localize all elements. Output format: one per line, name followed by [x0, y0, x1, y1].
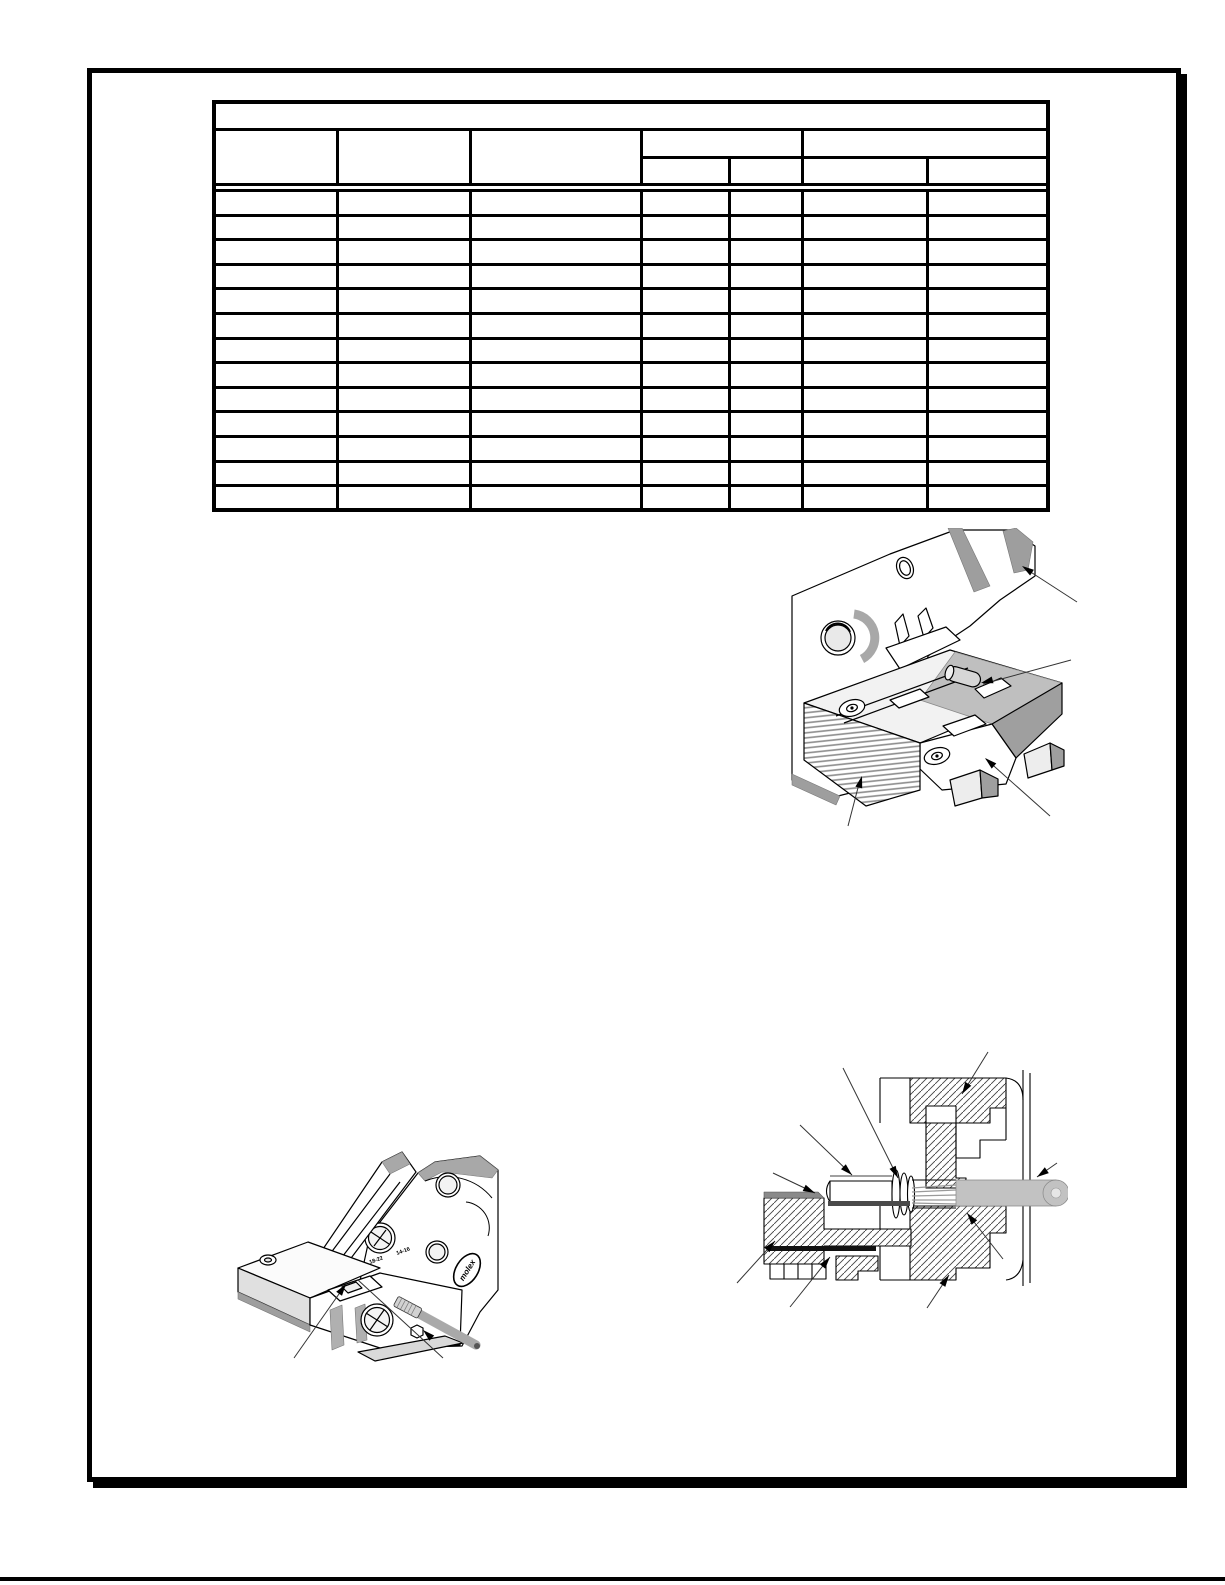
- sub-header: [802, 158, 927, 185]
- housing-step-section: [836, 1256, 878, 1280]
- hex-nut: [411, 1325, 423, 1338]
- table-cell: [927, 486, 1048, 511]
- table-cell: [470, 289, 641, 314]
- table-cell: [337, 313, 470, 338]
- table-cell: [802, 461, 927, 486]
- table-row: [214, 289, 1048, 314]
- wire-insulation: [956, 1180, 1056, 1206]
- table-cell: [729, 363, 802, 388]
- table-title-cell: [214, 102, 1048, 130]
- table-cell: [802, 486, 927, 511]
- housing-column-section: [926, 1123, 966, 1188]
- table-cell: [214, 338, 337, 363]
- table-cell: [470, 240, 641, 265]
- table-cell: [927, 289, 1048, 314]
- table-cell: [729, 387, 802, 412]
- table-cell: [470, 191, 641, 216]
- table-cell: [802, 191, 927, 216]
- table-cell: [802, 215, 927, 240]
- sub-header: [729, 158, 802, 185]
- group-header: [641, 130, 802, 158]
- table-cell: [337, 486, 470, 511]
- table-cell: [641, 363, 729, 388]
- table-row: [214, 486, 1048, 511]
- table-cell: [927, 191, 1048, 216]
- spec-table: [212, 100, 1050, 512]
- table-cell: [214, 412, 337, 437]
- table-cell: [927, 363, 1048, 388]
- table-cell: [214, 191, 337, 216]
- table-cell: [729, 338, 802, 363]
- table-cell: [337, 387, 470, 412]
- table-cell: [214, 436, 337, 461]
- table-cell: [802, 363, 927, 388]
- table-row: [214, 240, 1048, 265]
- table-cell: [641, 313, 729, 338]
- table-cell: [214, 363, 337, 388]
- page-footer-rule: [0, 1577, 1225, 1581]
- crimp-cross-section-figure: [718, 1028, 1068, 1328]
- table-cell: [927, 313, 1048, 338]
- table-cell: [470, 264, 641, 289]
- table-cell: [927, 412, 1048, 437]
- table-cell: [337, 289, 470, 314]
- table-cell: [802, 338, 927, 363]
- table-row: [214, 338, 1048, 363]
- table-cell: [470, 387, 641, 412]
- table-cell: [802, 240, 927, 265]
- table-cell: [927, 387, 1048, 412]
- table-cell: [802, 412, 927, 437]
- column-header: [214, 130, 337, 185]
- table-cell: [470, 363, 641, 388]
- body-screw: [426, 1241, 448, 1263]
- table-cell: [802, 436, 927, 461]
- column-header: [470, 130, 641, 185]
- retainer-block-section: [764, 1198, 911, 1264]
- table-cell: [641, 412, 729, 437]
- table-row: [214, 387, 1048, 412]
- table-cell: [641, 264, 729, 289]
- table-cell: [729, 461, 802, 486]
- terminal-tab: [828, 1201, 910, 1206]
- table-cell: [802, 264, 927, 289]
- table-cell: [337, 338, 470, 363]
- table-cell: [470, 461, 641, 486]
- table-row: [214, 461, 1048, 486]
- table-cell: [927, 338, 1048, 363]
- body-screw: [436, 1173, 460, 1197]
- contact-strip: [770, 1246, 876, 1251]
- table-cell: [470, 412, 641, 437]
- sub-header: [641, 158, 729, 185]
- housing-upper-section: [910, 1078, 1006, 1123]
- table-cell: [641, 338, 729, 363]
- table-cell: [729, 289, 802, 314]
- table-row: [214, 264, 1048, 289]
- table-cell: [641, 215, 729, 240]
- table-row: [214, 363, 1048, 388]
- table-cell: [641, 240, 729, 265]
- table-cell: [214, 313, 337, 338]
- table-cell: [214, 240, 337, 265]
- table-cell: [802, 289, 927, 314]
- table-cell: [729, 486, 802, 511]
- table-cell: [337, 363, 470, 388]
- table-cell: [729, 240, 802, 265]
- table-cell: [729, 412, 802, 437]
- table-cell: [729, 264, 802, 289]
- table-header-row: [214, 130, 1048, 158]
- table-cell: [337, 436, 470, 461]
- table-cell: [729, 215, 802, 240]
- table-cell: [214, 461, 337, 486]
- table-cell: [927, 240, 1048, 265]
- table-cell: [641, 486, 729, 511]
- table-cell: [927, 461, 1048, 486]
- table-cell: [337, 191, 470, 216]
- table-cell: [641, 436, 729, 461]
- table-cell: [470, 313, 641, 338]
- table-cell: [470, 486, 641, 511]
- housing-lower-section: [910, 1206, 1006, 1280]
- ferrule-rings: [892, 1170, 915, 1218]
- table-cell: [729, 313, 802, 338]
- table-cell: [802, 387, 927, 412]
- table-cell: [641, 387, 729, 412]
- table-title-row: [214, 102, 1048, 130]
- pivot-screw: [361, 1304, 393, 1336]
- table-cell: [641, 191, 729, 216]
- table-cell: [337, 412, 470, 437]
- table-cell: [214, 486, 337, 511]
- table-cell: [927, 264, 1048, 289]
- sub-header: [927, 158, 1048, 185]
- document-page: molex 18-22: [0, 0, 1225, 1585]
- table-row: [214, 436, 1048, 461]
- table-row: [214, 215, 1048, 240]
- table-cell: [337, 461, 470, 486]
- retainer-teeth: [770, 1264, 826, 1279]
- column-header: [337, 130, 470, 185]
- insulation-sleeve: [830, 1181, 892, 1202]
- spec-table-body: [214, 191, 1048, 511]
- table-cell: [470, 215, 641, 240]
- hand-crimp-tool-figure: molex 18-22: [230, 1140, 502, 1368]
- table-cell: [641, 461, 729, 486]
- table-cell: [337, 215, 470, 240]
- spec-table-container: [212, 100, 1050, 512]
- table-cell: [802, 313, 927, 338]
- locator-isometric-figure: [770, 528, 1082, 836]
- table-cell: [214, 387, 337, 412]
- table-row: [214, 412, 1048, 437]
- table-cell: [337, 264, 470, 289]
- table-cell: [641, 289, 729, 314]
- table-cell: [214, 215, 337, 240]
- table-cell: [214, 289, 337, 314]
- table-cell: [729, 191, 802, 216]
- table-cell: [337, 240, 470, 265]
- table-row: [214, 313, 1048, 338]
- table-cell: [927, 215, 1048, 240]
- group-header: [802, 130, 1048, 158]
- table-row: [214, 191, 1048, 216]
- table-cell: [470, 436, 641, 461]
- table-cell: [927, 436, 1048, 461]
- table-cell: [214, 264, 337, 289]
- table-cell: [470, 338, 641, 363]
- table-cell: [729, 436, 802, 461]
